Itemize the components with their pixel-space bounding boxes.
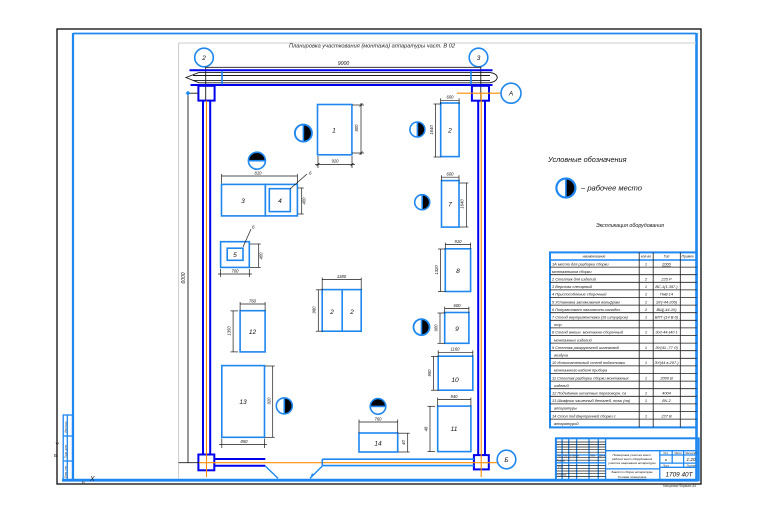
svg-text:13 Шкафчик чашечный деталей, т: 13 Шкафчик чашечный деталей, точк (на) xyxy=(552,398,631,403)
svg-text:Экспликация оборудования: Экспликация оборудования xyxy=(596,223,664,229)
svg-text:760: 760 xyxy=(249,298,257,303)
svg-text:600: 600 xyxy=(454,303,462,308)
svg-text:3: 3 xyxy=(477,55,481,62)
svg-text:4 Приспособление сборочный: 4 Приспособление сборочный xyxy=(552,292,607,297)
svg-text:Подп.: Подп. xyxy=(590,455,597,458)
svg-text:Дата: Дата xyxy=(598,455,606,458)
svg-text:наименование: наименование xyxy=(583,255,606,259)
svg-text:800: 800 xyxy=(354,124,359,132)
svg-text:воздуха: воздуха xyxy=(554,353,569,358)
svg-text:980: 980 xyxy=(312,306,317,314)
svg-text:Примеч.: Примеч. xyxy=(682,255,695,259)
svg-text:3 Верстак слесарный: 3 Верстак слесарный xyxy=(552,284,593,289)
svg-text:Б: Б xyxy=(54,453,57,458)
svg-text:Инв.подл.: Инв.подл. xyxy=(64,421,68,433)
svg-text:227 В: 227 В xyxy=(660,413,672,418)
svg-text:1: 1 xyxy=(645,292,647,297)
svg-text:1320: 1320 xyxy=(434,265,439,275)
svg-text:900: 900 xyxy=(434,324,439,332)
svg-text:14 Стол под Внутренней сборки: 14 Стол под Внутренней сборки с xyxy=(552,413,616,418)
svg-text:ЭУ(-44-)40 1: ЭУ(-44-)40 1 xyxy=(655,330,677,335)
svg-text:1640: 1640 xyxy=(429,125,434,135)
svg-text:Листов: Листов xyxy=(686,464,696,467)
svg-text:1: 1 xyxy=(645,398,647,403)
svg-text:X: X xyxy=(89,476,95,483)
svg-text:ВЩ(-44-10): ВЩ(-44-10) xyxy=(656,307,677,312)
svg-text:монтажных изделий: монтажных изделий xyxy=(554,337,593,342)
svg-text:13: 13 xyxy=(239,399,247,406)
svg-text:40: 40 xyxy=(401,440,406,445)
svg-text:4004: 4004 xyxy=(662,391,671,396)
svg-text:1: 1 xyxy=(645,261,647,266)
svg-text:11: 11 xyxy=(451,426,458,433)
svg-text:1380: 1380 xyxy=(337,274,347,279)
svg-text:Планировка участкования (монта: Планировка участкования (монтажа) аппара… xyxy=(289,44,455,50)
svg-text:ВПТ-(14 В-0): ВПТ-(14 В-0) xyxy=(655,315,679,320)
svg-text:аппаратурой: аппаратурой xyxy=(554,421,579,426)
svg-text:Н.контр.: Н.контр. xyxy=(557,474,567,477)
svg-text:1: 1 xyxy=(332,128,336,135)
svg-text:1350: 1350 xyxy=(227,326,232,336)
svg-text:9 Стеллаж разгрузочной шлангов: 9 Стеллаж разгрузочной шланговой xyxy=(552,345,620,350)
svg-text:Пров.: Пров. xyxy=(557,466,564,469)
svg-text:600: 600 xyxy=(447,172,455,177)
svg-text:ЭУ(41.-77 Л): ЭУ(41.-77 Л) xyxy=(655,345,678,350)
svg-text:Взам. инв.: Взам. инв. xyxy=(64,465,68,478)
svg-text:10: 10 xyxy=(451,377,459,384)
svg-text:5: 5 xyxy=(233,252,237,259)
svg-text:6: 6 xyxy=(309,171,312,176)
svg-text:1:20: 1:20 xyxy=(687,457,696,462)
svg-text:1: 1 xyxy=(645,299,647,304)
svg-text:910: 910 xyxy=(455,239,463,244)
svg-text:Масса: Масса xyxy=(674,452,682,455)
svg-text:760: 760 xyxy=(375,416,383,421)
svg-text:Копировал Формат А4: Копировал Формат А4 xyxy=(663,484,696,488)
svg-text:7 Стенд внутримонтажа (16 штуц: 7 Стенд внутримонтажа (16 штуцеров) xyxy=(552,315,629,320)
svg-text:5 Установка затачивания вольфр: 5 Установка затачивания вольфрам xyxy=(552,299,620,304)
svg-text:9: 9 xyxy=(455,326,459,333)
svg-text:Б: Б xyxy=(504,457,508,464)
svg-text:кол-во: кол-во xyxy=(641,255,651,259)
svg-text:4: 4 xyxy=(278,198,282,205)
svg-text:2 Стеллаж для изделий: 2 Стеллаж для изделий xyxy=(551,277,597,282)
svg-text:810: 810 xyxy=(255,170,263,175)
svg-text:2: 2 xyxy=(349,309,354,316)
svg-text:400: 400 xyxy=(302,197,307,205)
svg-text:Разраб.: Разраб. xyxy=(557,460,566,463)
svg-text:7: 7 xyxy=(448,202,452,209)
svg-text:1160: 1160 xyxy=(450,347,460,352)
svg-text:10 Испытательный стенд подгото: 10 Испытательный стенд подготовки xyxy=(552,360,626,365)
svg-text:монтажником сборки: монтажником сборки xyxy=(552,269,592,274)
svg-text:6 Полуавтомат наплавочно-налад: 6 Полуавтомат наплавочно-наладоч. xyxy=(552,307,621,312)
svg-text:950: 950 xyxy=(427,369,432,377)
svg-text:2000 В: 2000 В xyxy=(659,375,673,380)
svg-text:225 Р: 225 Р xyxy=(660,277,672,282)
svg-text:ЭУ(44 в-207.): ЭУ(44 в-207.) xyxy=(654,360,679,365)
svg-text:А: А xyxy=(508,91,513,98)
svg-text:аппаратуры: аппаратуры xyxy=(554,406,577,411)
svg-text:11 Стеллаж разборки сборки мон: 11 Стеллаж разборки сборки монтажных xyxy=(552,375,630,380)
svg-text:Тип: Тип xyxy=(664,255,670,259)
svg-text:ПнВ 14: ПнВ 14 xyxy=(660,292,674,297)
svg-text:920: 920 xyxy=(332,159,340,164)
svg-text:2000: 2000 xyxy=(661,261,671,266)
svg-text:1: 1 xyxy=(645,360,647,365)
svg-text:14: 14 xyxy=(374,441,382,448)
svg-text:монтажного кабеля прибора: монтажного кабеля прибора xyxy=(554,368,608,373)
svg-text:12: 12 xyxy=(249,329,257,336)
svg-text:Условные обозначения: Условные обозначения xyxy=(547,155,627,164)
svg-text:8: 8 xyxy=(456,268,460,275)
svg-text:600: 600 xyxy=(447,95,455,100)
svg-text:Лит.: Лит. xyxy=(662,452,669,455)
svg-text:1: 1 xyxy=(645,345,647,350)
svg-text:700: 700 xyxy=(232,268,240,273)
svg-text:Типовая планировка: Типовая планировка xyxy=(618,475,647,479)
svg-text:Завод по сборке аппаратуры: Завод по сборке аппаратуры xyxy=(611,470,653,474)
svg-text:ЭУ(-44-200): ЭУ(-44-200) xyxy=(656,299,678,304)
svg-text:850: 850 xyxy=(241,439,249,444)
svg-text:№ докум.: № докум. xyxy=(569,455,580,458)
svg-text:Лист: Лист xyxy=(562,455,569,458)
svg-text:1А место для разборки сборки: 1А место для разборки сборки xyxy=(552,261,609,266)
svg-text:940: 940 xyxy=(451,394,459,399)
svg-text:Масштаб: Масштаб xyxy=(685,452,697,455)
svg-text:400: 400 xyxy=(259,252,264,260)
svg-text:– рабочее место: – рабочее место xyxy=(580,184,642,193)
svg-text:12 Подъёмник штатных переговор: 12 Подъёмник штатных переговорн. св xyxy=(552,391,626,396)
svg-text:1: 1 xyxy=(645,375,647,380)
svg-text:Подп. дата: Подп. дата xyxy=(64,444,68,458)
svg-text:1: 1 xyxy=(645,413,647,418)
svg-text:3: 3 xyxy=(241,198,245,205)
svg-text:1: 1 xyxy=(645,315,647,320)
svg-text:1: 1 xyxy=(645,284,647,289)
svg-text:изделий: изделий xyxy=(554,383,569,388)
svg-text:1640: 1640 xyxy=(460,199,465,209)
svg-text:2: 2 xyxy=(201,55,206,62)
svg-text:тор: тор xyxy=(554,322,562,327)
svg-text:2: 2 xyxy=(329,309,334,316)
svg-text:Лист: Лист xyxy=(662,464,669,467)
svg-text:1: 1 xyxy=(645,391,647,396)
svg-text:9000: 9000 xyxy=(338,61,350,67)
svg-text:920: 920 xyxy=(266,397,271,405)
svg-text:2: 2 xyxy=(447,128,452,135)
svg-text:1709 40Т: 1709 40Т xyxy=(665,472,693,479)
svg-text:8 Стенд внешн. монтажно-сбороч: 8 Стенд внешн. монтажно-сборочный xyxy=(552,330,624,335)
svg-text:Б: Б xyxy=(82,480,85,485)
svg-text:6000: 6000 xyxy=(181,272,187,283)
svg-text:ВС-1(1.397.): ВС-1(1.397.) xyxy=(655,284,678,289)
svg-text:участка сваривания аппаратуры: участка сваривания аппаратуры xyxy=(607,461,656,465)
svg-text:ВЧ-2: ВЧ-2 xyxy=(662,398,671,403)
svg-text:Изм: Изм xyxy=(557,455,562,458)
svg-text:48: 48 xyxy=(424,426,429,431)
svg-text:6: 6 xyxy=(252,225,255,230)
svg-text:1: 1 xyxy=(645,330,647,335)
